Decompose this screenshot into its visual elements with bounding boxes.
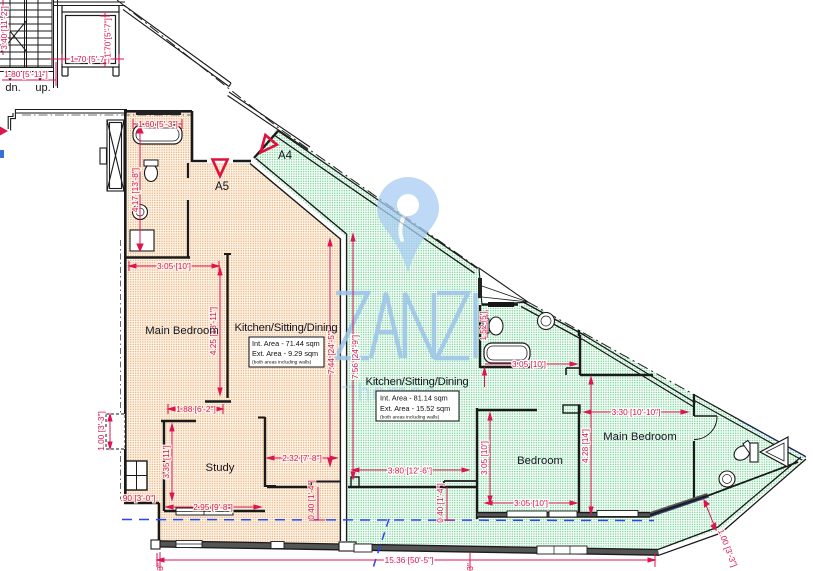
- svg-text:0.40 [1'-4"]: 0.40 [1'-4"]: [306, 480, 316, 520]
- svg-text:3.05 [10']: 3.05 [10']: [514, 498, 548, 508]
- svg-text:1.00 [3'-3"]: 1.00 [3'-3"]: [96, 411, 106, 451]
- svg-text:7.44 [24'-5"]: 7.44 [24'-5"]: [326, 330, 336, 374]
- svg-text:1.52 [5']: 1.52 [5']: [478, 311, 488, 340]
- svg-text:3": 3": [465, 563, 475, 571]
- svg-text:3.05 [10']: 3.05 [10']: [157, 261, 191, 271]
- svg-text:Ext. Area - 15.52 sqm: Ext. Area - 15.52 sqm: [380, 404, 450, 413]
- svg-text:1.70 [5'-7"]: 1.70 [5'-7"]: [103, 18, 113, 58]
- svg-text:2.32 [7'-8"]: 2.32 [7'-8"]: [282, 453, 322, 463]
- svg-text:3.05 [10']: 3.05 [10']: [512, 359, 546, 369]
- svg-text:.90 [3'-0"]: .90 [3'-0"]: [121, 493, 156, 503]
- svg-text:1.80 [5'-11"]: 1.80 [5'-11"]: [4, 69, 48, 79]
- svg-text:1.00 [3'-3"]: 1.00 [3'-3"]: [716, 528, 740, 569]
- svg-text:4.17 [13'-8"]: 4.17 [13'-8"]: [130, 168, 140, 212]
- svg-text:(both areas including walls): (both areas including walls): [380, 415, 440, 421]
- svg-text:Ext. Area - 9.29 sqm: Ext. Area - 9.29 sqm: [252, 349, 318, 358]
- svg-text:up.: up.: [35, 82, 50, 94]
- svg-text:dn.: dn.: [5, 82, 20, 94]
- svg-text:Main Bedroom: Main Bedroom: [145, 325, 218, 337]
- svg-text:2.95 [9'-8"]: 2.95 [9'-8"]: [193, 502, 233, 512]
- svg-text:A4: A4: [278, 150, 293, 162]
- svg-text:7.56 [24'-9"]: 7.56 [24'-9"]: [350, 335, 360, 379]
- svg-text:Study: Study: [206, 462, 235, 474]
- svg-text:3.35 [11']: 3.35 [11']: [161, 445, 171, 478]
- svg-text:Int. Area - 71.44 sqm: Int. Area - 71.44 sqm: [252, 339, 320, 348]
- svg-text:Kitchen/Sitting/Dining: Kitchen/Sitting/Dining: [366, 376, 469, 388]
- svg-text:1.60 [5'-3"]: 1.60 [5'-3"]: [138, 119, 178, 129]
- svg-text:0.40 [1'-4"]: 0.40 [1'-4"]: [435, 483, 445, 523]
- svg-text:3.80 [12'-6"]: 3.80 [12'-6"]: [388, 466, 432, 476]
- svg-text:4.28 [14']: 4.28 [14']: [580, 429, 590, 463]
- svg-text:Bedroom: Bedroom: [517, 455, 563, 467]
- svg-text:Kitchen/Sitting/Dining: Kitchen/Sitting/Dining: [235, 322, 338, 334]
- svg-text:A5: A5: [215, 181, 229, 193]
- svg-text:1.88 [6'-2"]: 1.88 [6'-2"]: [176, 404, 216, 414]
- svg-text:15.36 [50'-5"]: 15.36 [50'-5"]: [385, 555, 434, 565]
- svg-text:Main Bedroom: Main Bedroom: [603, 431, 676, 443]
- svg-text:Int. Area - 81.14 sqm: Int. Area - 81.14 sqm: [380, 394, 448, 403]
- svg-text:3.30 [10'-10"]: 3.30 [10'-10"]: [612, 407, 661, 417]
- svg-text:(both areas including walls): (both areas including walls): [252, 360, 312, 366]
- svg-text:3.40 [11'-2"]: 3.40 [11'-2"]: [0, 6, 9, 50]
- svg-text:3": 3": [155, 563, 165, 571]
- svg-text:3.05 [10']: 3.05 [10']: [479, 441, 489, 475]
